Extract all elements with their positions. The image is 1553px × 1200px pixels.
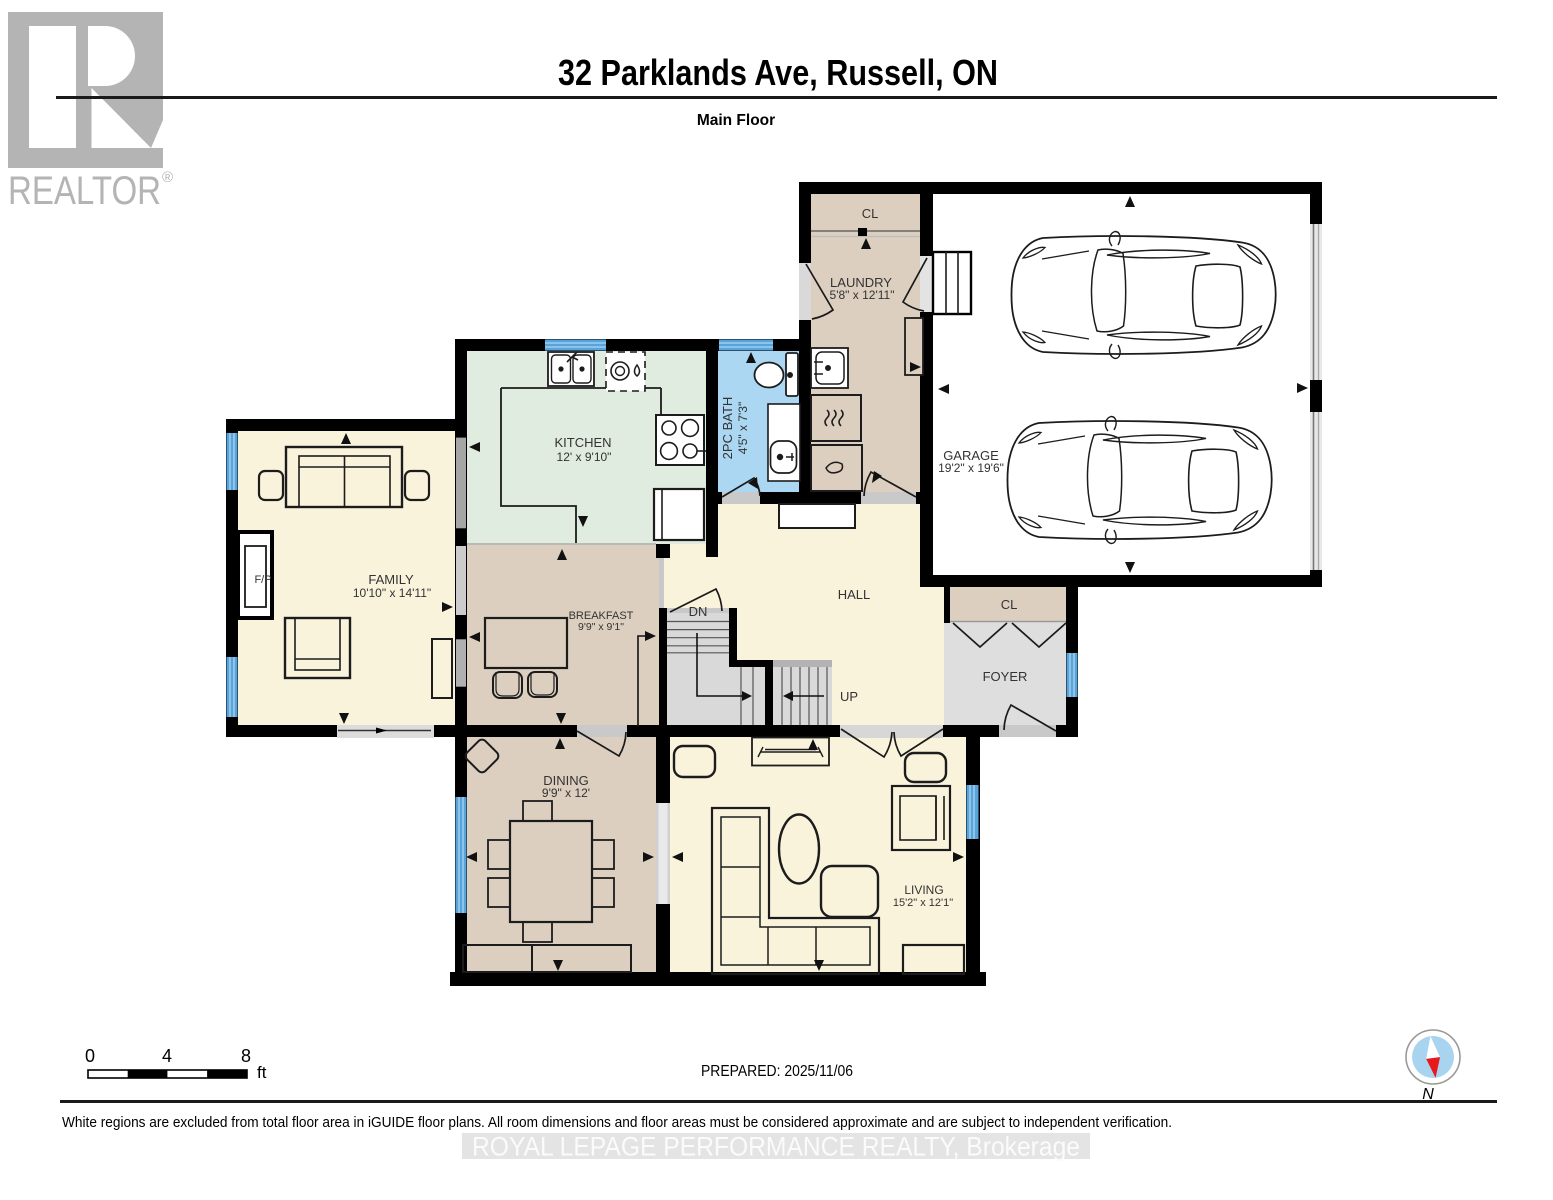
svg-text:PREPARED: 2025/11/06: PREPARED: 2025/11/06 xyxy=(701,1063,853,1080)
svg-text:5'8" x 12'11": 5'8" x 12'11" xyxy=(830,288,895,302)
svg-text:REALTOR: REALTOR xyxy=(8,169,161,213)
svg-text:FAMILY: FAMILY xyxy=(368,572,414,587)
svg-text:32 Parklands Ave, Russell, ON: 32 Parklands Ave, Russell, ON xyxy=(558,52,998,93)
svg-text:CL: CL xyxy=(862,206,879,221)
svg-text:White regions are excluded fro: White regions are excluded from total fl… xyxy=(62,1115,1172,1131)
svg-text:4: 4 xyxy=(162,1046,172,1066)
svg-text:Main Floor: Main Floor xyxy=(697,112,775,129)
svg-text:UP: UP xyxy=(840,689,858,704)
svg-text:DN: DN xyxy=(689,604,708,619)
svg-text:FOYER: FOYER xyxy=(983,669,1028,684)
svg-text:F/P: F/P xyxy=(254,574,271,586)
svg-text:15'2" x 12'1": 15'2" x 12'1" xyxy=(893,897,953,909)
svg-text:8: 8 xyxy=(241,1046,251,1066)
svg-text:0: 0 xyxy=(85,1046,95,1066)
svg-text:®: ® xyxy=(162,169,173,186)
svg-text:9'9" x 9'1": 9'9" x 9'1" xyxy=(578,621,624,633)
svg-text:KITCHEN: KITCHEN xyxy=(554,435,611,450)
svg-text:4'5" x 7'3": 4'5" x 7'3" xyxy=(736,402,750,454)
svg-text:19'2" x 19'6": 19'2" x 19'6" xyxy=(938,461,1004,475)
svg-text:9'9" x 12': 9'9" x 12' xyxy=(542,786,590,800)
svg-text:HALL: HALL xyxy=(838,587,871,602)
svg-text:CL: CL xyxy=(1001,597,1018,612)
svg-text:12' x 9'10": 12' x 9'10" xyxy=(557,450,612,464)
svg-text:ft: ft xyxy=(257,1063,267,1082)
svg-text:LIVING: LIVING xyxy=(904,883,943,897)
svg-text:2PC BATH: 2PC BATH xyxy=(720,397,735,460)
svg-text:10'10" x 14'11": 10'10" x 14'11" xyxy=(353,586,431,600)
svg-text:ROYAL LEPAGE PERFORMANCE REALT: ROYAL LEPAGE PERFORMANCE REALTY, Brokera… xyxy=(472,1132,1080,1162)
